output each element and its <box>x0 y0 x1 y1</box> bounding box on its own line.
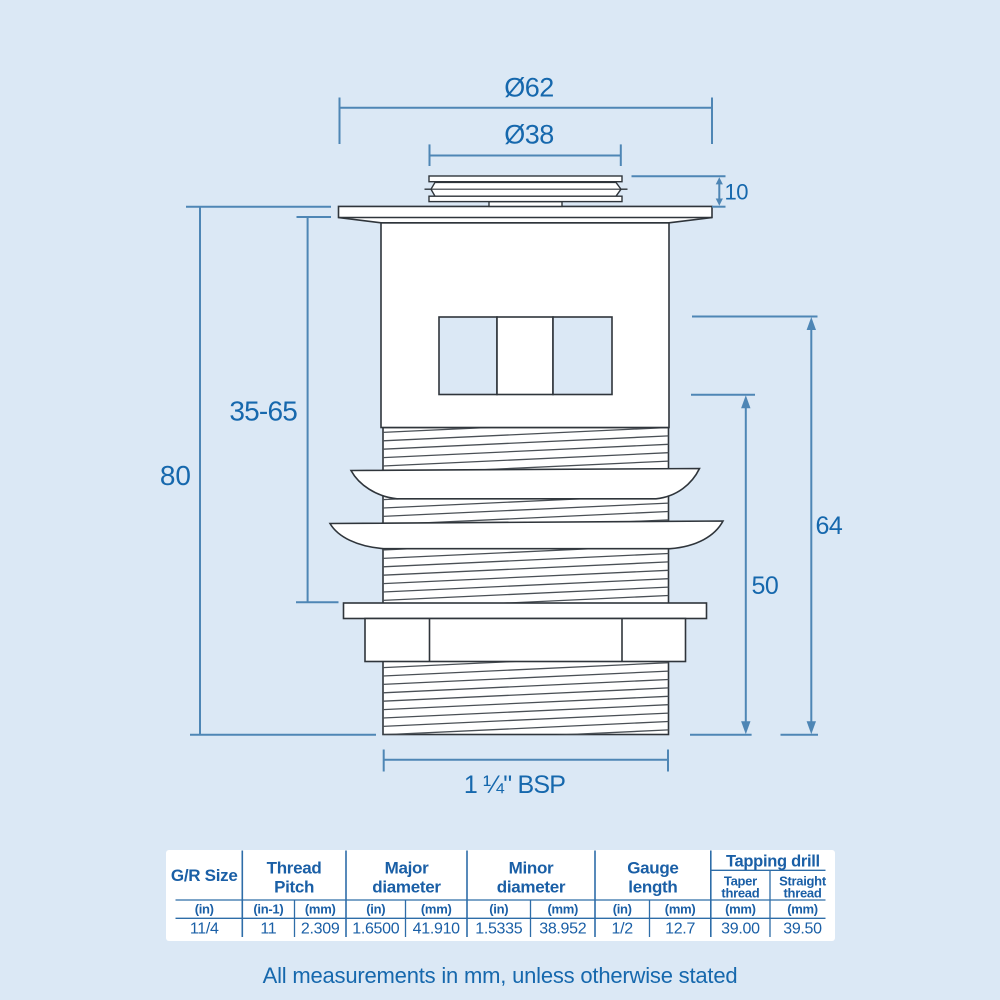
svg-text:(mm): (mm) <box>665 901 696 916</box>
svg-text:35-65: 35-65 <box>229 396 297 427</box>
svg-text:Major: Major <box>385 859 430 878</box>
svg-text:1/2: 1/2 <box>612 921 634 938</box>
svg-text:1 ¼" BSP: 1 ¼" BSP <box>464 771 565 799</box>
svg-text:11: 11 <box>260 921 276 938</box>
svg-text:50: 50 <box>752 572 779 600</box>
svg-text:length: length <box>628 878 677 897</box>
svg-text:64: 64 <box>816 512 843 540</box>
svg-text:(in): (in) <box>489 901 508 916</box>
svg-text:Thread: Thread <box>267 859 322 878</box>
svg-text:Pitch: Pitch <box>274 878 314 897</box>
svg-text:Minor: Minor <box>509 859 554 878</box>
svg-text:12.7: 12.7 <box>665 921 695 938</box>
svg-text:80: 80 <box>160 460 191 491</box>
svg-text:thread: thread <box>721 886 759 901</box>
svg-text:(mm): (mm) <box>725 901 756 916</box>
svg-text:(in-1): (in-1) <box>253 901 283 916</box>
svg-text:Ø38: Ø38 <box>504 120 554 150</box>
svg-text:1.5335: 1.5335 <box>475 921 523 938</box>
svg-text:1.6500: 1.6500 <box>352 921 400 938</box>
svg-text:Tapping drill: Tapping drill <box>726 853 820 871</box>
svg-text:(mm): (mm) <box>548 901 579 916</box>
svg-text:38.952: 38.952 <box>539 921 587 938</box>
svg-text:thread: thread <box>784 886 822 901</box>
svg-text:2.309: 2.309 <box>301 921 340 938</box>
svg-text:39.50: 39.50 <box>783 921 822 938</box>
svg-text:10: 10 <box>725 180 749 205</box>
svg-text:diameter: diameter <box>497 878 566 897</box>
svg-text:diameter: diameter <box>372 878 441 897</box>
svg-text:(in): (in) <box>613 901 632 916</box>
svg-text:G/R Size: G/R Size <box>171 866 238 885</box>
svg-text:(in): (in) <box>366 901 385 916</box>
svg-text:Ø62: Ø62 <box>504 73 554 103</box>
svg-text:(mm): (mm) <box>787 901 818 916</box>
svg-text:(in): (in) <box>195 901 214 916</box>
svg-text:(mm): (mm) <box>421 901 452 916</box>
svg-text:39.00: 39.00 <box>721 921 760 938</box>
svg-text:(mm): (mm) <box>305 901 336 916</box>
svg-text:41.910: 41.910 <box>413 921 461 938</box>
svg-text:Gauge: Gauge <box>627 859 678 878</box>
svg-text:11/4: 11/4 <box>190 921 219 938</box>
